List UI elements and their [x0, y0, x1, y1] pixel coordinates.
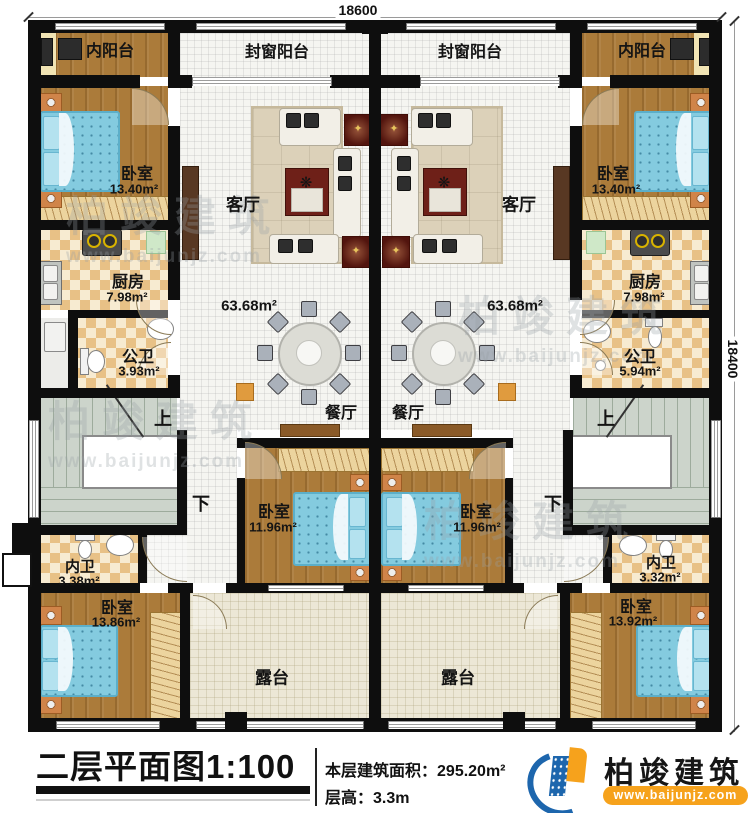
pillow — [349, 529, 366, 559]
wall — [177, 430, 187, 535]
bed-sheet — [677, 627, 692, 691]
sofa-cushion — [442, 239, 457, 253]
pillow — [43, 116, 60, 150]
pillow — [386, 497, 403, 527]
wardrobe-bottom-left — [150, 612, 182, 720]
chair — [301, 301, 317, 317]
room-label-bedroom-mid-left: 卧室 — [258, 498, 290, 522]
wall — [570, 388, 722, 398]
wash-basin — [619, 535, 647, 556]
drawing-title-name: 二层平面图 — [36, 748, 206, 785]
sink-basin — [694, 265, 709, 282]
stairs-up-label-right: 上 — [597, 405, 615, 431]
wall — [570, 126, 582, 300]
burner — [635, 234, 649, 248]
balcony-item-left-1 — [41, 38, 53, 66]
area-label-public-bath-right: 5.94m² — [619, 364, 660, 379]
pillow — [42, 661, 59, 691]
pillow — [692, 152, 709, 186]
room-label-dining-right: 餐厅 — [392, 399, 424, 423]
drawing-title: 二层平面图1:100 — [36, 740, 295, 788]
area-label-living-left: 63.68m² — [221, 298, 277, 315]
cutting-board-left — [146, 231, 166, 254]
wall — [610, 583, 722, 593]
sofa-cushion — [397, 156, 411, 171]
bed-sheet — [676, 113, 691, 186]
nightstand — [350, 564, 370, 581]
window — [55, 23, 165, 30]
stairs-up-label-left: 上 — [154, 405, 172, 431]
nightstand — [382, 564, 402, 581]
wall — [168, 126, 180, 300]
floor-stairs-right-lower — [573, 487, 710, 525]
room-label-living-right: 客厅 — [502, 191, 536, 216]
window — [29, 420, 39, 518]
burner — [651, 234, 665, 248]
room-label-sealed-balcony-right: 封窗阳台 — [438, 38, 502, 62]
wall — [180, 75, 192, 88]
title-underline-thick — [36, 786, 310, 794]
pillow — [42, 629, 59, 659]
room-label-bedroom-mid-right: 卧室 — [460, 498, 492, 522]
area-label-living-right: 63.68m² — [487, 298, 543, 315]
floor-area-value: 295.20m² — [437, 763, 506, 780]
room-label-kitchen-right: 厨房 — [629, 268, 661, 292]
doormat-left-2: ✦ — [342, 236, 370, 268]
floor-plan-drawing: ❋ ✦ ✦ — [0, 0, 750, 813]
stool-right — [498, 383, 516, 401]
exterior-box — [2, 553, 32, 587]
area-label-bedroom-mid-left: 11.96m² — [249, 520, 297, 535]
chair — [257, 345, 273, 361]
area-label-public-bath-left: 3.93m² — [118, 364, 159, 379]
window — [268, 585, 344, 591]
nightstand — [350, 474, 370, 491]
terrace-railing — [196, 721, 364, 729]
room-label-kitchen-left: 厨房 — [112, 268, 144, 292]
wall — [570, 33, 582, 88]
wall — [168, 33, 180, 88]
wall — [28, 20, 41, 732]
chair — [435, 389, 451, 405]
cutting-board-right — [586, 231, 606, 254]
room-label-sealed-balcony-left: 封窗阳台 — [245, 38, 309, 62]
area-label-inner-bath-left: 3.38m² — [58, 574, 99, 589]
wall — [362, 20, 388, 34]
floor-area-label: 本层建筑面积： — [325, 763, 437, 780]
sofa-cushion — [338, 156, 352, 171]
area-label-bedroom-mid-right: 11.96m² — [453, 520, 501, 535]
window — [56, 721, 160, 729]
terrace-pillar — [225, 712, 247, 730]
sofa-cushion — [298, 239, 313, 253]
pillow — [692, 116, 709, 150]
coffee-table-top-right — [429, 188, 461, 212]
sliding-door — [192, 77, 332, 86]
floor-area-info: 本层建筑面积：295.20m² — [325, 757, 506, 781]
area-label-kitchen-left: 7.98m² — [106, 290, 147, 305]
dimension-top-value: 18600 — [336, 2, 381, 18]
sofa-cushion — [278, 239, 293, 253]
stairs-down-label-right: 下 — [544, 490, 562, 516]
dimension-right-value: 18400 — [725, 337, 741, 382]
sliding-door — [420, 77, 560, 86]
title-underline-thin — [36, 799, 310, 801]
burner — [87, 234, 101, 248]
plant-icon: ❋ — [438, 176, 451, 191]
wall — [68, 310, 78, 388]
chair — [435, 301, 451, 317]
wall — [563, 430, 573, 535]
wall — [237, 478, 245, 583]
chair — [345, 345, 361, 361]
nightstand — [40, 695, 62, 714]
sofa-cushion — [436, 113, 451, 128]
plant-icon: ❋ — [300, 176, 313, 191]
sofa-cushion — [422, 239, 437, 253]
burner — [103, 234, 117, 248]
area-label-bedroom-bottom-left: 13.86m² — [92, 615, 140, 630]
terrace-pillar — [503, 712, 525, 730]
drawing-title-scale: 1:100 — [206, 748, 295, 785]
sink-basin — [43, 283, 58, 300]
wall — [168, 583, 193, 593]
wall — [330, 75, 369, 88]
wall — [28, 525, 178, 535]
wall — [381, 75, 420, 88]
balcony-item-right-2 — [670, 38, 694, 60]
window — [711, 420, 721, 518]
wall — [582, 220, 722, 230]
wall — [28, 75, 140, 88]
nightstand — [40, 606, 62, 625]
room-label-inner-balcony-left: 内阳台 — [86, 37, 134, 61]
dining-table-right-center — [430, 340, 456, 366]
coffee-table-top-left — [291, 188, 323, 212]
wall — [557, 583, 582, 593]
brand-website: www.baijunjz.com — [603, 786, 748, 805]
floor-height-label: 层高： — [325, 790, 373, 807]
tv-cabinet-mid-right — [412, 424, 472, 437]
pillow — [349, 497, 366, 527]
room-label-inner-balcony-right: 内阳台 — [618, 37, 666, 61]
room-label-living-left: 客厅 — [226, 191, 260, 216]
sofa-cushion — [286, 113, 301, 128]
balcony-item-left-2 — [58, 38, 82, 60]
dining-table-left-center — [296, 340, 322, 366]
stair-void-left — [82, 435, 186, 489]
window — [587, 23, 697, 30]
wardrobe-mid-right — [381, 448, 474, 472]
window — [408, 585, 484, 591]
sofa-cushion — [338, 176, 352, 191]
wardrobe-bottom-right — [570, 612, 602, 720]
laundry-left — [44, 322, 66, 352]
tv-cabinet-mid-left — [280, 424, 340, 437]
toilet-bowl — [87, 350, 105, 373]
window — [592, 721, 696, 729]
bed-sheet — [333, 494, 348, 560]
doormat-left-1: ✦ — [344, 114, 372, 146]
pillow — [386, 529, 403, 559]
wall — [180, 593, 190, 718]
floor-height-info: 层高：3.3m — [325, 784, 409, 808]
pillow — [693, 661, 710, 691]
wall — [572, 525, 722, 535]
wall — [505, 478, 513, 583]
stair-void-right — [568, 435, 672, 489]
doormat-right-1: ✦ — [380, 114, 408, 146]
pillow — [43, 152, 60, 186]
room-label-dining-left: 餐厅 — [325, 399, 357, 423]
terrace-railing — [388, 721, 556, 729]
window — [196, 23, 346, 30]
sofa-cushion — [304, 113, 319, 128]
pillow — [693, 629, 710, 659]
sofa-cushion — [397, 176, 411, 191]
sink-basin — [43, 265, 58, 282]
wall — [28, 220, 168, 230]
chair — [301, 389, 317, 405]
area-label-bedroom-top-right: 13.40m² — [592, 182, 640, 197]
logo-tower-orange — [566, 747, 587, 783]
area-label-kitchen-right: 7.98m² — [623, 290, 664, 305]
brand-logo-icon — [527, 746, 601, 808]
room-label-terrace-right: 露台 — [441, 664, 475, 689]
floor-stairs-left-lower — [40, 487, 177, 525]
area-label-inner-bath-right: 3.32m² — [639, 570, 680, 585]
stool-left — [236, 383, 254, 401]
wash-basin — [106, 534, 134, 556]
chair — [391, 345, 407, 361]
chair — [479, 345, 495, 361]
area-label-bedroom-top-left: 13.40m² — [110, 182, 158, 197]
room-label-terrace-left: 露台 — [255, 664, 289, 689]
doormat-right-2: ✦ — [382, 236, 410, 268]
floor-height-value: 3.3m — [373, 790, 409, 807]
nightstand — [382, 474, 402, 491]
title-divider — [315, 748, 317, 806]
wall — [28, 388, 180, 398]
sink-basin — [694, 283, 709, 300]
nightstand — [40, 93, 62, 112]
area-label-bedroom-bottom-right: 13.92m² — [609, 614, 657, 629]
room-label-bedroom-top-left: 卧室 — [121, 160, 153, 184]
stairs-down-label-left: 下 — [192, 490, 210, 516]
window — [406, 23, 556, 30]
wall — [610, 75, 722, 88]
hall-cabinet-right — [553, 166, 570, 260]
hall-cabinet-left — [182, 166, 199, 260]
sofa-cushion — [418, 113, 433, 128]
wall — [560, 593, 570, 718]
room-label-bedroom-top-right: 卧室 — [597, 160, 629, 184]
wardrobe-mid-left — [278, 448, 371, 472]
wall — [709, 20, 722, 732]
wall-center — [369, 20, 381, 718]
